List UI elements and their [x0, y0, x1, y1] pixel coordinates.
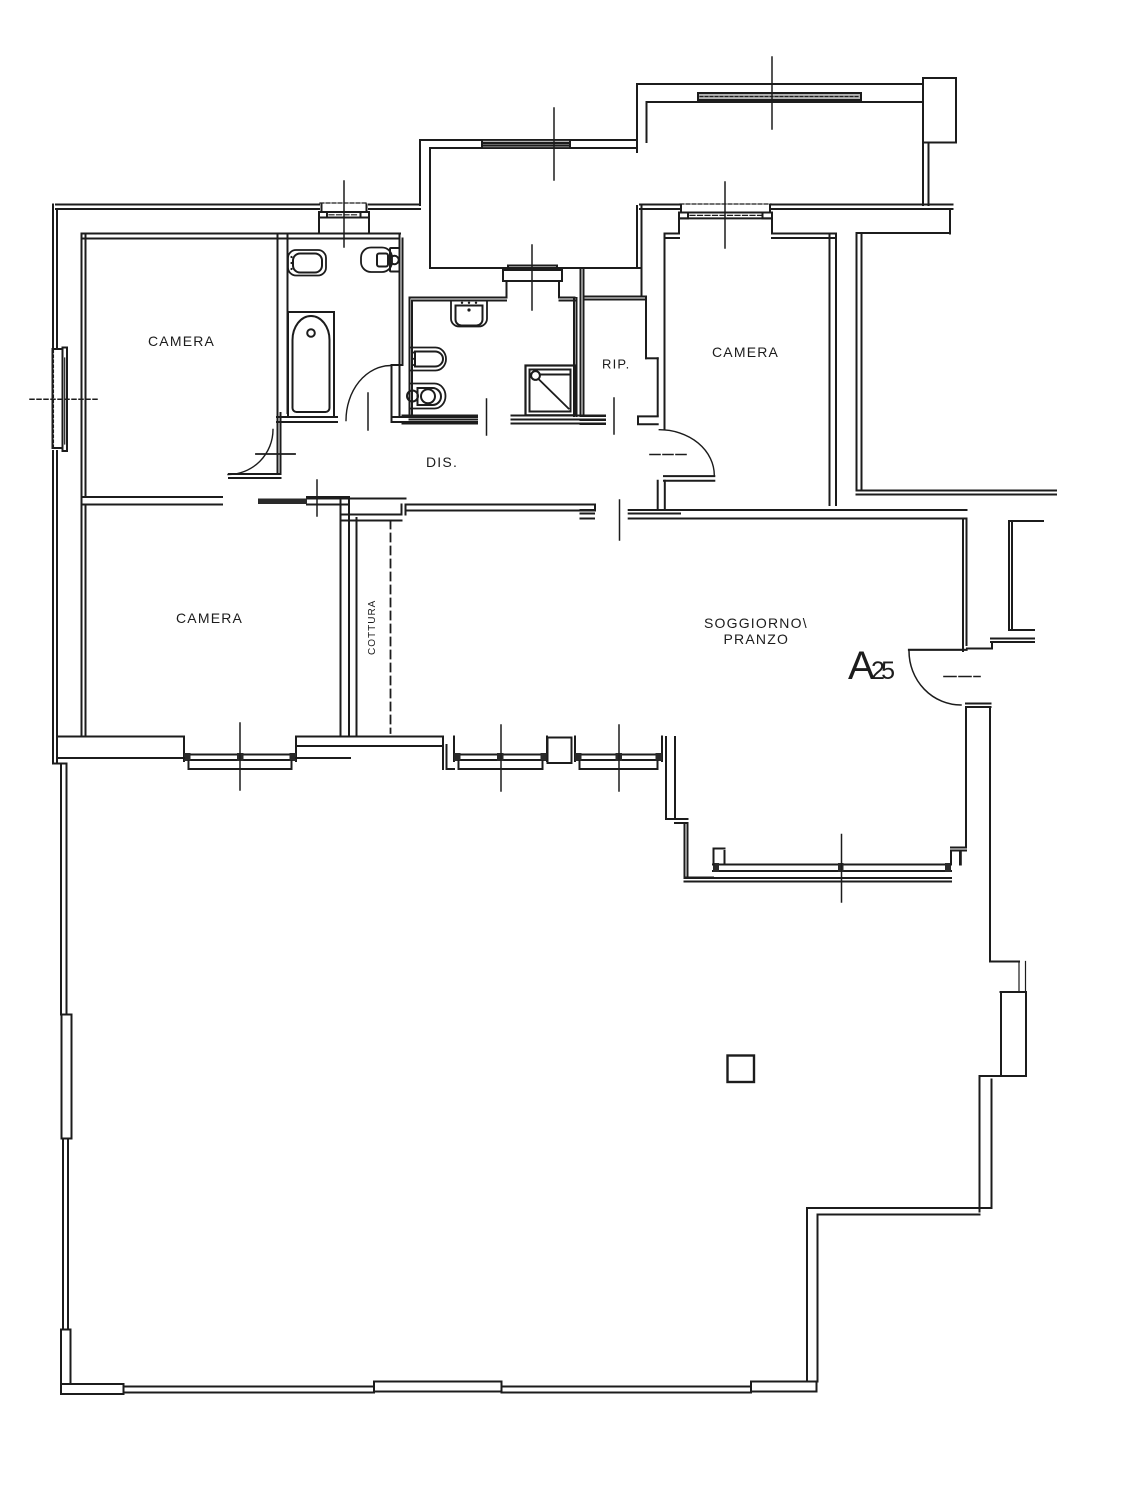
- svg-text:RIP.: RIP.: [602, 357, 630, 372]
- svg-text:CAMERA: CAMERA: [148, 333, 215, 349]
- svg-text:PRANZO: PRANZO: [724, 631, 790, 647]
- svg-text:CAMERA: CAMERA: [176, 610, 243, 626]
- svg-text:DIS.: DIS.: [426, 454, 458, 470]
- svg-text:COTTURA: COTTURA: [367, 600, 378, 655]
- svg-text:25: 25: [871, 657, 895, 685]
- svg-text:SOGGIORNO\: SOGGIORNO\: [704, 615, 808, 631]
- svg-text:CAMERA: CAMERA: [712, 344, 779, 360]
